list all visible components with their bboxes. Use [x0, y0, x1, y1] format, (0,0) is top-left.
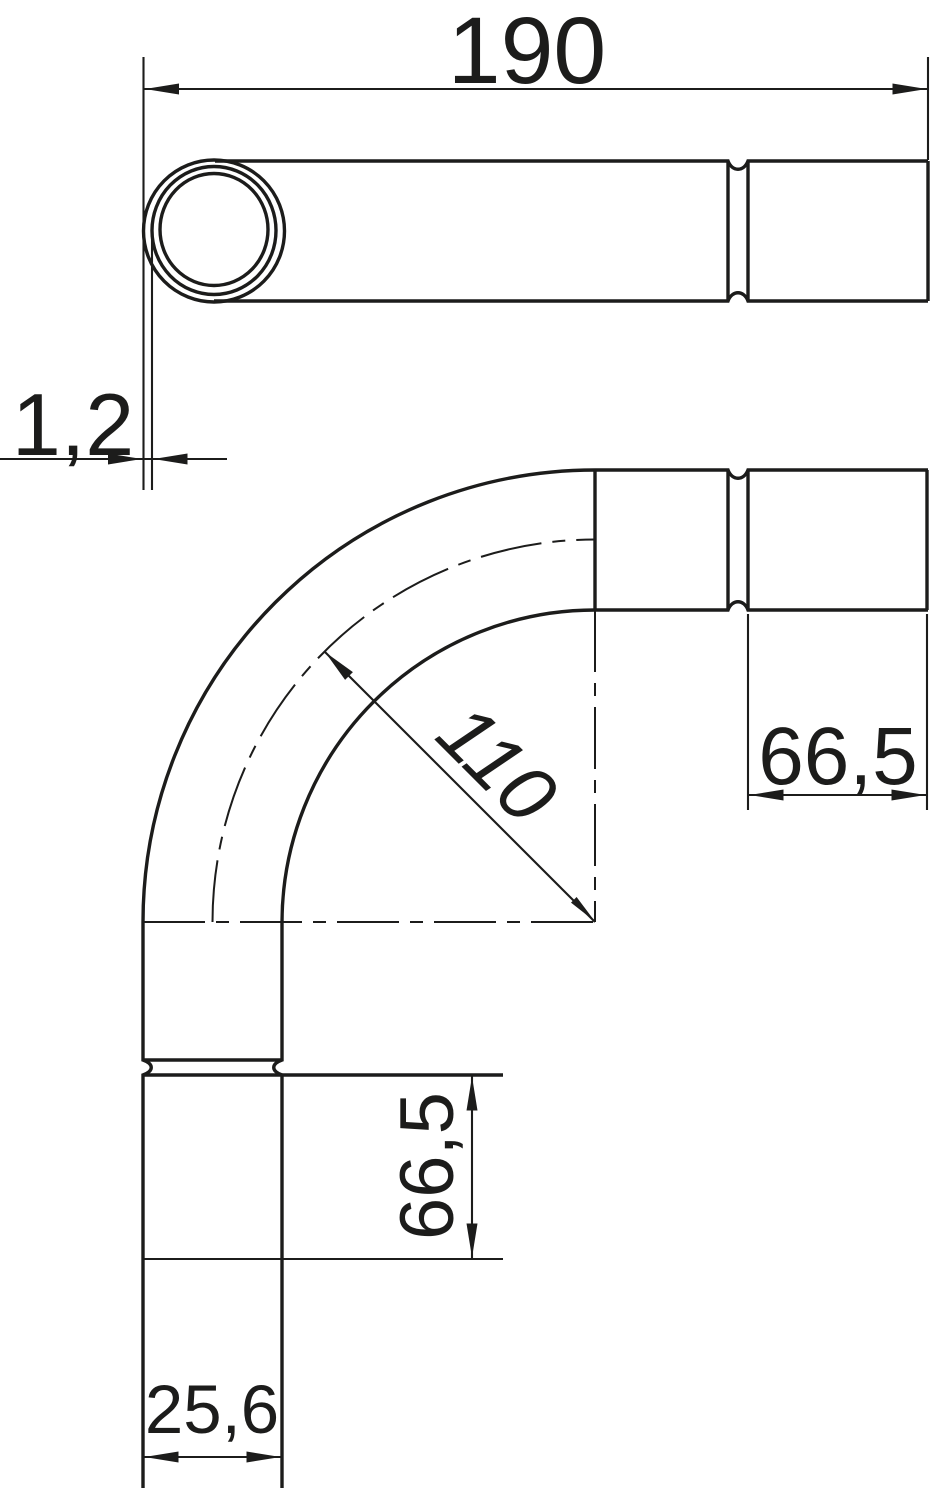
dim-label-socket-length-left: 66,5 [385, 1092, 470, 1240]
dim-label-socket-length-right: 66,5 [758, 711, 918, 802]
dim-label-outer-diameter: 25,6 [145, 1371, 279, 1448]
dim-socket-length-left: 66,5 [385, 1075, 478, 1259]
dim-label-overall-length: 190 [448, 0, 607, 104]
pipe-bend-drawing: 190 1,2 110 [0, 0, 931, 1488]
drawing-canvas: 190 1,2 110 [0, 0, 931, 1488]
dim-label-wall-thickness: 1,2 [12, 375, 134, 474]
